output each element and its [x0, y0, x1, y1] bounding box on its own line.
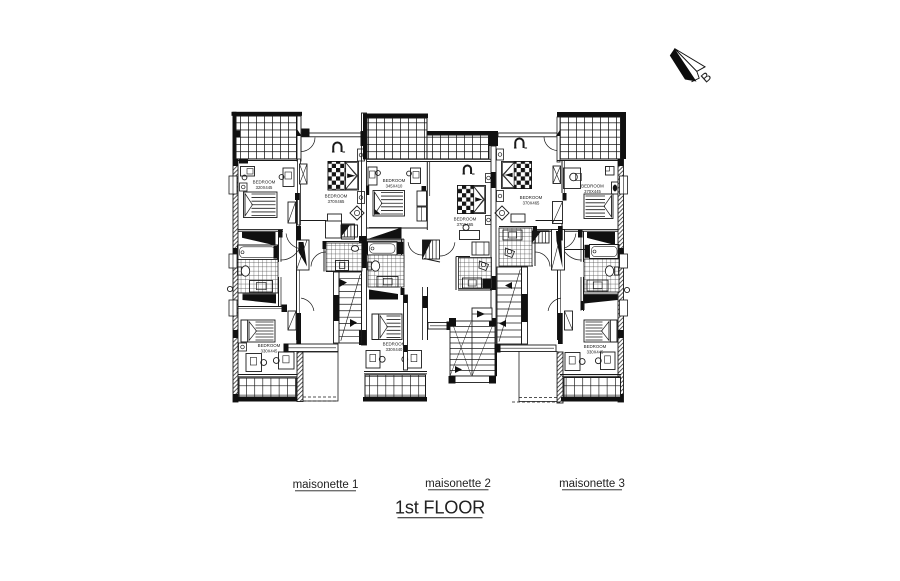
svg-text:BEDROOM: BEDROOM — [258, 343, 281, 348]
svg-text:370X445: 370X445 — [584, 189, 601, 194]
svg-text:370X465: 370X465 — [523, 200, 540, 205]
svg-text:BEDROOM: BEDROOM — [454, 217, 477, 222]
svg-text:BEDROOM: BEDROOM — [520, 195, 543, 200]
svg-text:1st FLOOR: 1st FLOOR — [395, 498, 485, 518]
svg-text:BEDROOM: BEDROOM — [253, 180, 276, 185]
svg-text:BEDROOM: BEDROOM — [383, 342, 406, 347]
svg-text:maisonette 2: maisonette 2 — [425, 478, 491, 490]
svg-text:BEDROOM: BEDROOM — [383, 178, 406, 183]
svg-text:maisonette 1: maisonette 1 — [293, 479, 359, 491]
svg-text:320X445: 320X445 — [256, 185, 273, 190]
svg-text:BEDROOM: BEDROOM — [325, 194, 348, 199]
svg-text:maisonette 3: maisonette 3 — [559, 478, 625, 490]
svg-text:330X440: 330X440 — [386, 347, 403, 352]
svg-text:370X465: 370X465 — [328, 199, 345, 204]
svg-text:BEDROOM: BEDROOM — [584, 344, 607, 349]
svg-text:330X445: 330X445 — [261, 348, 278, 353]
svg-text:BEDROOM: BEDROOM — [581, 184, 604, 189]
svg-text:345X410: 345X410 — [386, 183, 403, 188]
